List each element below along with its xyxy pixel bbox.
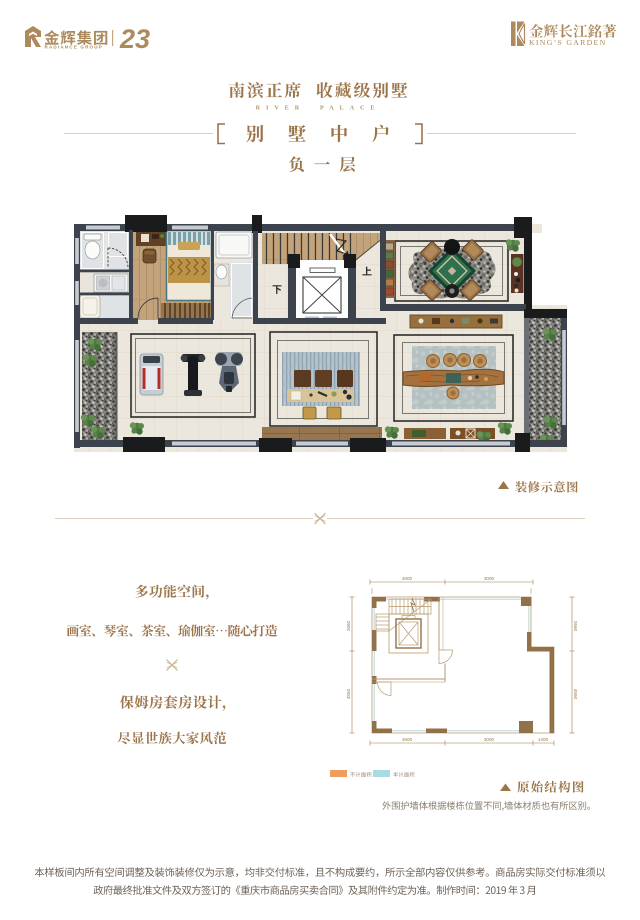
- svg-text:2660: 2660: [573, 621, 578, 632]
- svg-text:1400: 1400: [538, 737, 549, 742]
- svg-text:RADIANCE GROUP: RADIANCE GROUP: [45, 45, 103, 50]
- svg-text:3000: 3000: [484, 737, 495, 742]
- svg-text:4800: 4800: [402, 576, 413, 581]
- svg-text:3000: 3000: [484, 576, 495, 581]
- svg-text:KING’S GARDEN: KING’S GARDEN: [529, 38, 607, 47]
- svg-text:4550: 4550: [573, 689, 578, 700]
- svg-text:4800: 4800: [402, 737, 413, 742]
- svg-text:2660: 2660: [346, 620, 351, 631]
- svg-text:23: 23: [119, 24, 150, 54]
- svg-text:4550: 4550: [346, 688, 351, 699]
- svg-text:RIVER PALACE: RIVER PALACE: [256, 105, 381, 112]
